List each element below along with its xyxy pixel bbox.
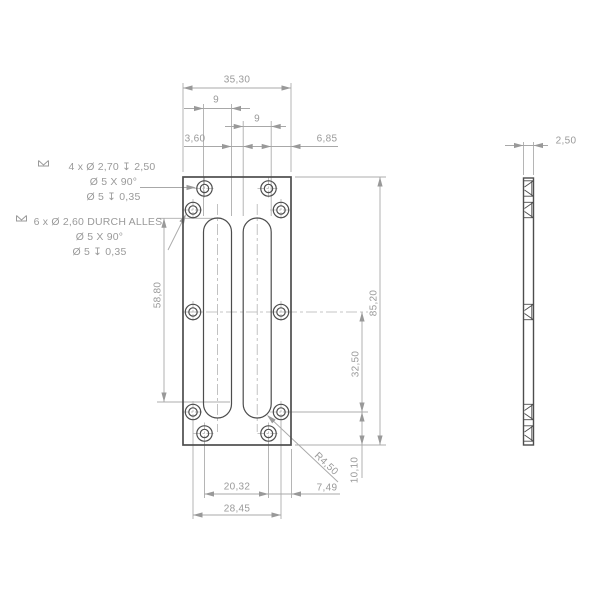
callout-through-line2: Ø 5 X 90° bbox=[16, 230, 180, 245]
dim-overall-width: 35,30 bbox=[224, 75, 251, 86]
side-view bbox=[524, 178, 534, 445]
dim-thickness: 2,50 bbox=[556, 136, 577, 147]
plate-outline bbox=[183, 177, 291, 445]
dimension-arrows bbox=[161, 85, 543, 517]
side-hole-profiles bbox=[524, 181, 534, 441]
callout-blind-line3: Ø 5 ↧ 0,35 bbox=[38, 190, 186, 205]
front-view bbox=[183, 177, 291, 445]
dim-right-slot-width: 9 bbox=[254, 114, 260, 125]
callout-through-holes: 6 x Ø 2,60 DURCH ALLES Ø 5 X 90° Ø 5 ↧ 0… bbox=[16, 215, 180, 260]
extension-lines bbox=[157, 83, 534, 519]
drawing-sheet: 35,30 9 9 3,60 6,85 58,80 85,20 32,50 10… bbox=[0, 0, 600, 600]
center-lines bbox=[182, 178, 368, 445]
callout-through-line1: 6 x Ø 2,60 DURCH ALLES bbox=[16, 215, 180, 230]
callout-blind-line1: 4 x Ø 2,70 ↧ 2,50 bbox=[38, 160, 186, 175]
callout-blind-line2: Ø 5 X 90° bbox=[38, 175, 186, 190]
drawing-canvas bbox=[0, 0, 600, 600]
dim-thru-cols-spacing: 28,45 bbox=[224, 504, 251, 515]
dim-csk-col-to-edge: 7,49 bbox=[317, 483, 338, 494]
callout-through-line3: Ø 5 ↧ 0,35 bbox=[16, 245, 180, 260]
dim-row-to-bottom-edge: 10,10 bbox=[350, 457, 361, 484]
dim-csk-cols-spacing: 20,32 bbox=[224, 482, 251, 493]
callout-blind-holes: 4 x Ø 2,70 ↧ 2,50 Ø 5 X 90° Ø 5 ↧ 0,35 bbox=[38, 160, 186, 205]
dimension-lines bbox=[164, 88, 548, 515]
dim-slot-to-right-edge: 6,85 bbox=[317, 134, 338, 145]
dim-overall-height: 85,20 bbox=[369, 290, 380, 317]
dim-left-slot-width: 9 bbox=[213, 95, 219, 106]
dim-slot-gap: 3,60 bbox=[185, 134, 206, 145]
through-holes bbox=[185, 202, 288, 419]
dim-slot-length: 58,80 bbox=[153, 282, 164, 309]
dim-hole-row-spacing: 32,50 bbox=[351, 351, 362, 378]
